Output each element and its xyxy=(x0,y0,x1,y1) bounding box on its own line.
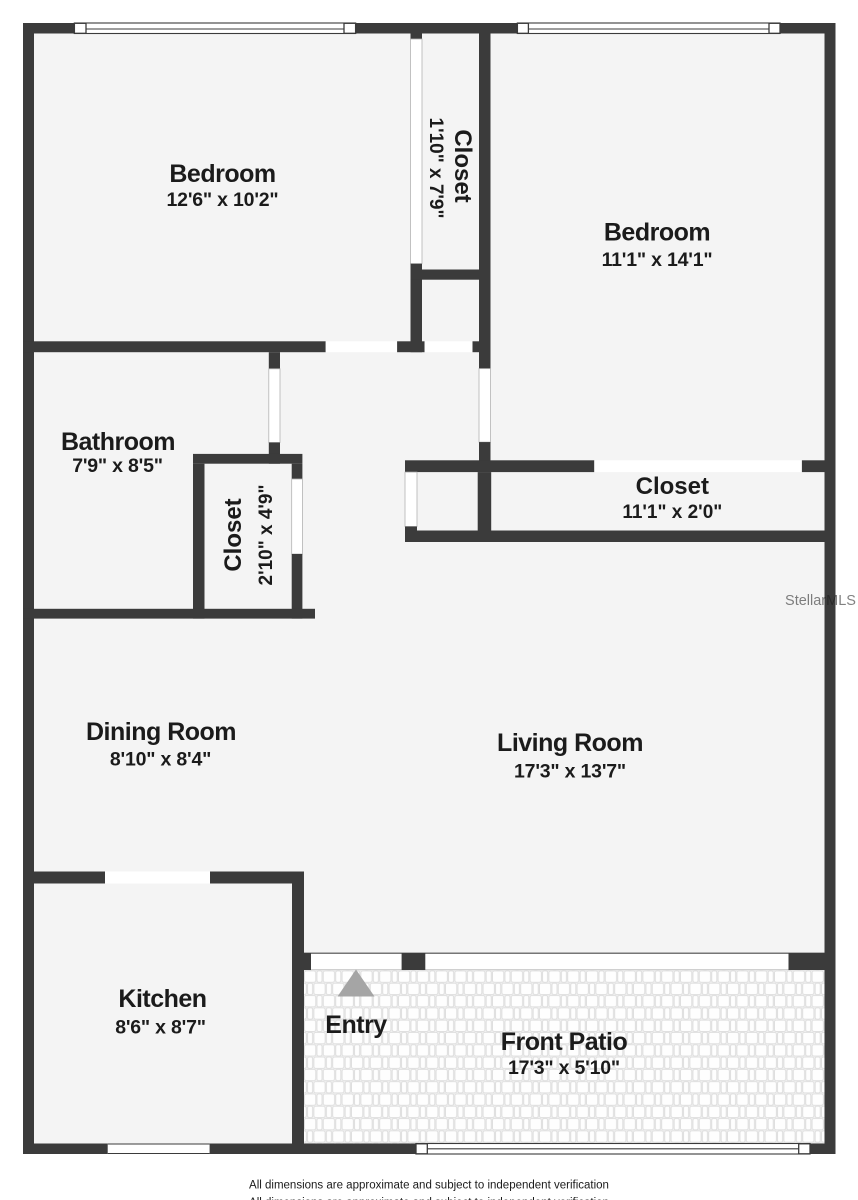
svg-text:12'6" x 10'2": 12'6" x 10'2" xyxy=(167,189,279,211)
svg-text:2'10" x 4'9": 2'10" x 4'9" xyxy=(256,484,277,585)
svg-text:Bedroom: Bedroom xyxy=(169,160,275,188)
svg-text:Dining Room: Dining Room xyxy=(86,718,236,746)
svg-text:Closet: Closet xyxy=(449,129,476,202)
svg-text:1'10" x 7'9": 1'10" x 7'9" xyxy=(425,117,446,218)
svg-text:Living Room: Living Room xyxy=(497,729,643,757)
svg-text:Bedroom: Bedroom xyxy=(604,219,710,247)
svg-text:17'3" x 13'7": 17'3" x 13'7" xyxy=(514,761,626,783)
svg-text:Front Patio: Front Patio xyxy=(501,1028,628,1056)
svg-text:17'3" x 5'10": 17'3" x 5'10" xyxy=(508,1057,620,1079)
svg-text:8'6" x 8'7": 8'6" x 8'7" xyxy=(115,1017,206,1039)
svg-text:Closet: Closet xyxy=(220,498,247,571)
svg-text:Entry: Entry xyxy=(325,1011,387,1039)
svg-text:Kitchen: Kitchen xyxy=(118,985,206,1013)
svg-text:Closet: Closet xyxy=(636,473,709,500)
svg-text:11'1" x 14'1": 11'1" x 14'1" xyxy=(602,249,713,271)
svg-text:All dimensions are approximate: All dimensions are approximate and subje… xyxy=(249,1180,609,1192)
svg-text:7'9" x 8'5": 7'9" x 8'5" xyxy=(72,455,163,477)
svg-text:8'10" x 8'4": 8'10" x 8'4" xyxy=(110,749,211,771)
svg-text:Bathroom: Bathroom xyxy=(61,428,175,456)
svg-text:StellarMLS: StellarMLS xyxy=(785,593,856,609)
svg-text:11'1" x 2'0": 11'1" x 2'0" xyxy=(622,502,722,523)
